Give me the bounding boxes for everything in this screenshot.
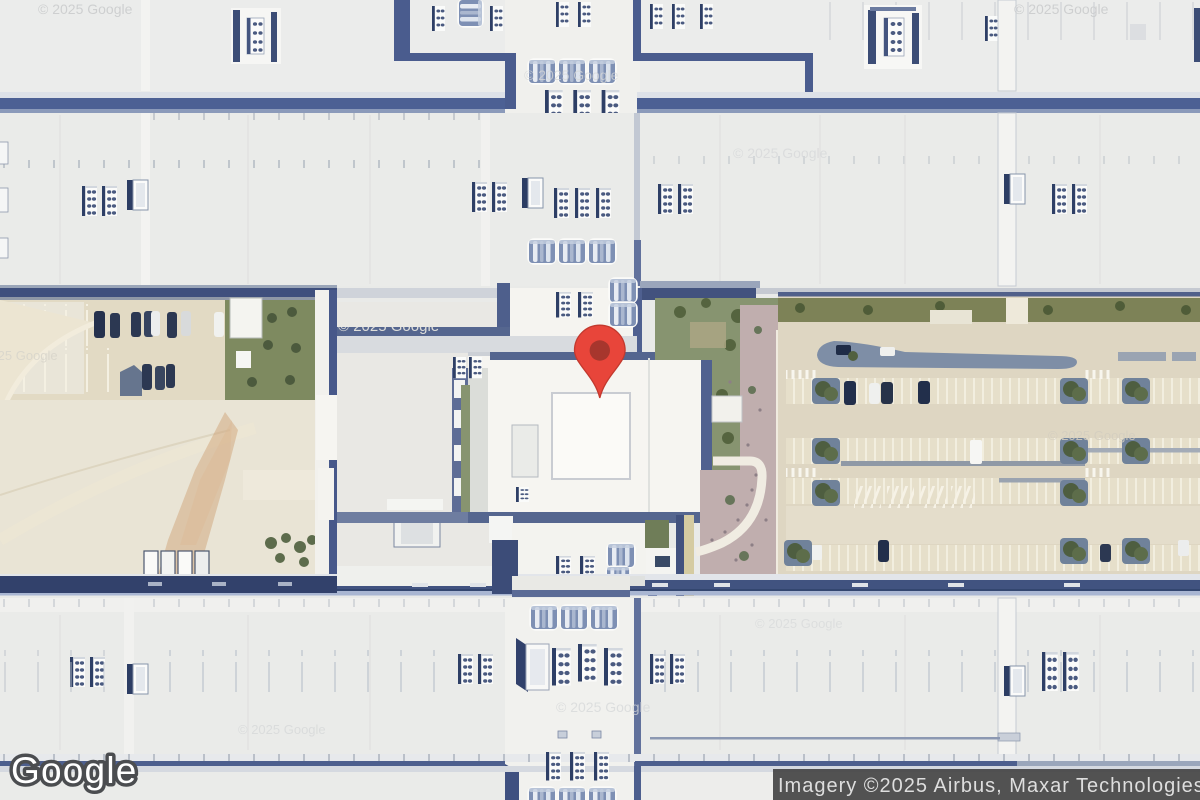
svg-text:© 2025 Google: © 2025 Google — [755, 616, 843, 631]
svg-text:© 2025 Google: © 2025 Google — [38, 1, 133, 17]
svg-text:© 2025 Google: © 2025 Google — [1048, 428, 1136, 443]
svg-text:Google: Google — [11, 750, 138, 791]
svg-text:© 2025 Google: © 2025 Google — [556, 699, 651, 715]
svg-text:Imagery ©2025 Airbus, Maxar Te: Imagery ©2025 Airbus, Maxar Technologies — [778, 775, 1200, 797]
svg-text:© 2025 Google: © 2025 Google — [0, 348, 58, 363]
svg-text:© 2025 Google: © 2025 Google — [238, 722, 326, 737]
svg-text:© 2025 Google: © 2025 Google — [338, 318, 439, 335]
svg-text:© 2025 Google: © 2025 Google — [524, 67, 619, 83]
svg-text:© 2025 Google: © 2025 Google — [733, 145, 828, 161]
svg-text:© 2025 Google: © 2025 Google — [1014, 1, 1109, 17]
